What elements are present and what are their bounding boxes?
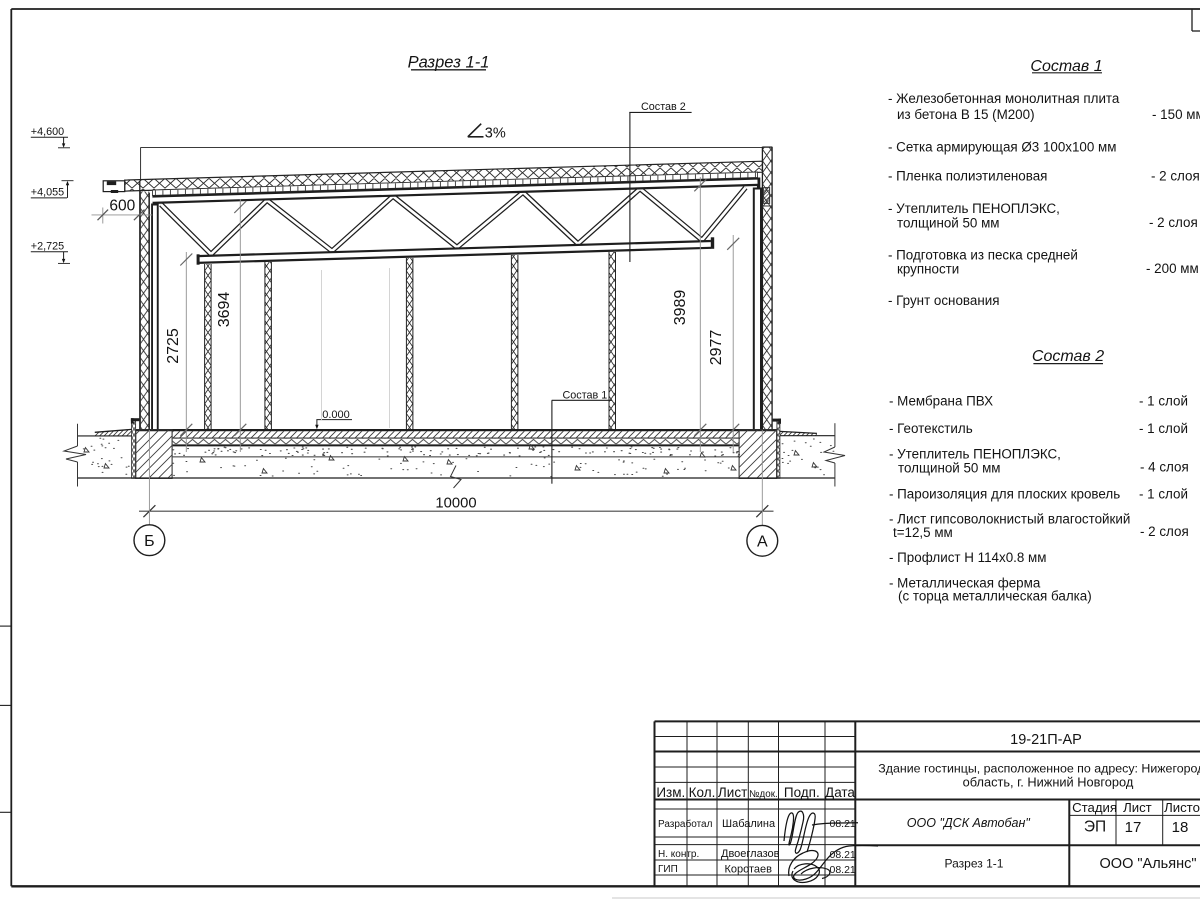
svg-text:- Профлист Н 114х0.8 мм: - Профлист Н 114х0.8 мм: [889, 550, 1046, 565]
svg-text:08.21: 08.21: [830, 864, 856, 876]
svg-text:3%: 3%: [485, 126, 506, 142]
svg-text:- Пароизоляция для плоских кро: - Пароизоляция для плоских кровель: [889, 487, 1120, 502]
svg-text:600: 600: [109, 198, 135, 215]
svg-text:+4,055: +4,055: [31, 186, 64, 198]
svg-text:А: А: [757, 534, 768, 551]
svg-text:- 200 мм: - 200 мм: [1146, 261, 1199, 276]
svg-text:Коротаев: Коротаев: [725, 864, 773, 876]
svg-text:- Грунт основания: - Грунт основания: [888, 293, 999, 308]
svg-text:- 150 мм: - 150 мм: [1152, 107, 1200, 122]
svg-text:Разрез 1-1: Разрез 1-1: [408, 54, 490, 72]
svg-text:ЭП: ЭП: [1084, 819, 1106, 836]
svg-text:ООО "Альянс": ООО "Альянс": [1100, 856, 1197, 872]
svg-text:- 1 слой: - 1 слой: [1139, 421, 1188, 436]
svg-text:Разработал: Разработал: [658, 818, 713, 830]
svg-text:- Утеплитель ПЕНОПЛЭКС,: - Утеплитель ПЕНОПЛЭКС,: [889, 447, 1061, 462]
svg-text:- 1 слой: - 1 слой: [1139, 487, 1188, 502]
svg-text:- Железобетонная монолитная п: - Железобетонная монолитная плита: [888, 91, 1120, 106]
svg-text:Разрез 1-1: Разрез 1-1: [945, 856, 1004, 870]
svg-text:t=12,5 мм: t=12,5 мм: [893, 525, 953, 540]
svg-text:- 4 слоя: - 4 слоя: [1140, 460, 1189, 475]
svg-text:08.21: 08.21: [830, 849, 856, 861]
svg-text:- Геотекстиль: - Геотекстиль: [889, 421, 973, 436]
svg-text:толщиной 50 мм: толщиной 50 мм: [898, 461, 1001, 476]
svg-text:17: 17: [1125, 819, 1142, 836]
svg-text:(с торца металлическая балка): (с торца металлическая балка): [898, 589, 1092, 604]
svg-text:ООО "ДСК Автобан": ООО "ДСК Автобан": [907, 816, 1031, 830]
svg-text:толщиной 50 мм: толщиной 50 мм: [897, 216, 1000, 231]
svg-text:3989: 3989: [672, 290, 689, 326]
svg-text:Подп.: Подп.: [784, 785, 820, 800]
svg-text:Листов: Листов: [1164, 800, 1200, 815]
svg-text:Н. контр.: Н. контр.: [658, 849, 699, 860]
svg-text:+2,725: +2,725: [31, 240, 64, 252]
svg-text:2725: 2725: [165, 328, 182, 364]
svg-text:- Мембрана ПВХ: - Мембрана ПВХ: [889, 394, 993, 409]
svg-text:- 2 слоя: - 2 слоя: [1149, 215, 1198, 230]
svg-text:Изм.: Изм.: [656, 785, 685, 800]
svg-text:- Подготовка из песка средней: - Подготовка из песка средней: [888, 248, 1078, 263]
svg-text:Б: Б: [144, 533, 155, 550]
svg-text:Стадия: Стадия: [1072, 800, 1117, 815]
svg-text:10000: 10000: [435, 496, 476, 512]
svg-text:Двоеглазов: Двоеглазов: [721, 848, 780, 860]
svg-text:3694: 3694: [216, 292, 233, 328]
svg-text:ГИП: ГИП: [658, 864, 678, 875]
svg-text:19-21П-АР: 19-21П-АР: [1010, 732, 1082, 748]
svg-text:Дата: Дата: [825, 785, 855, 800]
svg-text:Кол.: Кол.: [689, 785, 716, 800]
svg-text:08.21: 08.21: [830, 818, 856, 830]
svg-text:из бетона В 15 (М200): из бетона В 15 (М200): [897, 107, 1035, 122]
svg-text:Состав 2: Состав 2: [1032, 348, 1104, 365]
svg-text:- Утеплитель ПЕНОПЛЭКС,: - Утеплитель ПЕНОПЛЭКС,: [888, 201, 1060, 216]
svg-text:18: 18: [1172, 819, 1189, 836]
svg-text:Лист: Лист: [718, 785, 747, 800]
svg-text:+4,600: +4,600: [31, 126, 64, 138]
svg-text:Лист: Лист: [1123, 800, 1152, 815]
svg-text:- 2 слоя: - 2 слоя: [1151, 169, 1200, 184]
svg-text:крупности: крупности: [897, 262, 959, 277]
svg-text:Здание гостинцы, расположенное: Здание гостинцы, расположенное по адресу…: [878, 761, 1200, 775]
svg-text:Шабалина: Шабалина: [722, 818, 776, 830]
svg-text:- Сетка армирующая Ø3 100х100: - Сетка армирующая Ø3 100х100 мм: [888, 140, 1116, 155]
svg-text:Состав 1: Состав 1: [563, 389, 608, 401]
svg-text:область, г. Нижний Новгород: область, г. Нижний Новгород: [963, 775, 1134, 790]
svg-text:- Пленка полиэтиленовая: - Пленка полиэтиленовая: [888, 169, 1047, 184]
svg-text:- 2 слоя: - 2 слоя: [1140, 524, 1189, 539]
svg-text:№док.: №док.: [749, 789, 778, 800]
svg-text:2977: 2977: [708, 330, 725, 366]
svg-text:- 1 слой: - 1 слой: [1139, 394, 1188, 409]
svg-text:Состав 2: Состав 2: [641, 101, 686, 113]
